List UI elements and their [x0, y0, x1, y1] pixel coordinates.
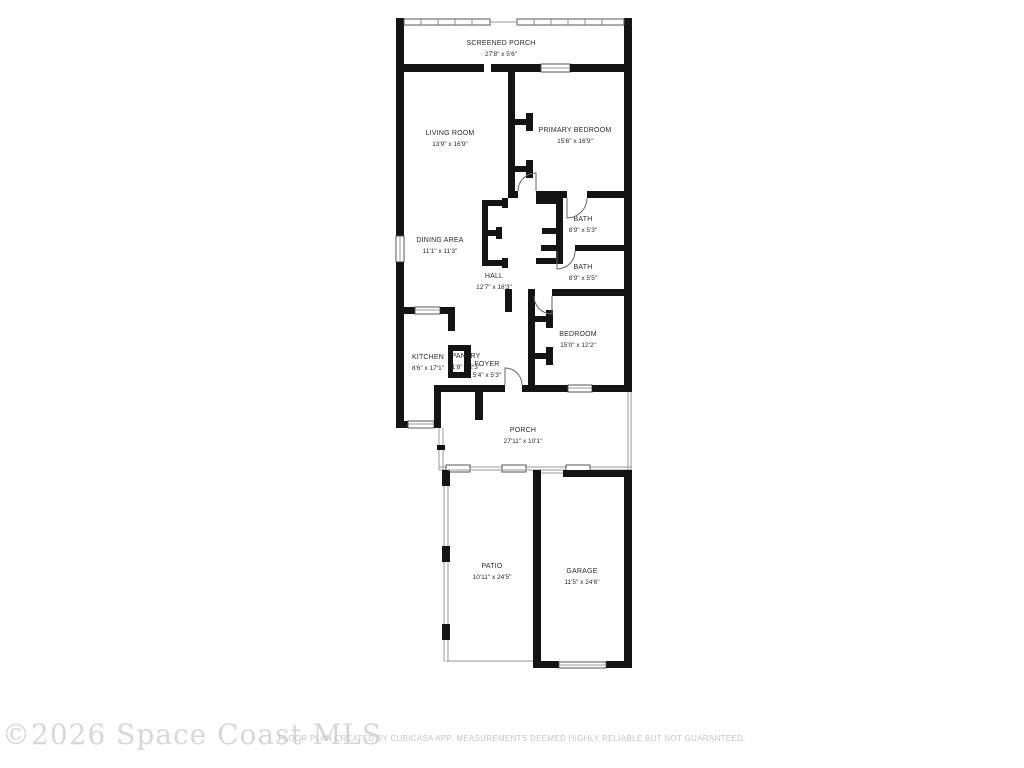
- room-name: HALL: [476, 272, 512, 283]
- room-dims: 27'11" x 10'1": [504, 436, 543, 446]
- hall-closets: [482, 198, 563, 268]
- window: [396, 236, 404, 262]
- living-primary-divider: [508, 72, 533, 197]
- room-dims: 5'4" x 5'3": [473, 370, 501, 380]
- room-name: PATIO: [473, 562, 512, 573]
- room-label-garage: GARAGE 11'5" x 24'6": [564, 567, 599, 587]
- room-dims: 8'9" x 5'3": [569, 225, 597, 235]
- room-label-screened-porch: SCREENED PORCH 27'8" x 5'6": [467, 39, 536, 59]
- room-name: FOYER: [473, 360, 501, 371]
- room-dims: 13'9" x 16'9": [426, 139, 475, 149]
- room-name: GARAGE: [564, 567, 599, 578]
- room-label-primary-bedroom: PRIMARY BEDROOM 15'6" x 16'9": [539, 126, 612, 146]
- window: [541, 64, 570, 72]
- house-top-wall: [396, 64, 632, 72]
- garage-door: [559, 662, 606, 668]
- room-label-kitchen: KITCHEN 8'6" x 17'1": [412, 353, 444, 373]
- disclaimer-text: FLOOR PLAN CREATED BY CUBICASA APP. MEAS…: [0, 734, 1024, 743]
- room-name: PRIMARY BEDROOM: [539, 126, 612, 137]
- room-label-living-room: LIVING ROOM 13'9" x 16'9": [426, 129, 475, 149]
- room-label-hall: HALL 12'7" x 18'3": [476, 272, 512, 292]
- room-label-bath-1: BATH 8'9" x 5'3": [569, 215, 597, 235]
- room-label-bath-2: BATH 8'9" x 5'5": [569, 263, 597, 283]
- room-name: BEDROOM: [559, 330, 597, 341]
- room-dims: 10'11" x 24'5": [473, 572, 512, 582]
- room-dims: 15'0" x 12'2": [559, 340, 597, 350]
- room-name: PORCH: [504, 426, 543, 437]
- room-name: LIVING ROOM: [426, 129, 475, 140]
- window: [415, 307, 440, 314]
- room-dims: 27'8" x 5'6": [467, 49, 536, 59]
- room-dims: 11'1" x 11'3": [416, 246, 463, 256]
- mid-horizontal-wall: [508, 173, 632, 218]
- room-name: KITCHEN: [412, 353, 444, 364]
- room-dims: 12'7" x 18'3": [476, 282, 512, 292]
- floor-plan-page: SCREENED PORCH 27'8" x 5'6" LIVING ROOM …: [0, 0, 1024, 768]
- room-name: BATH: [569, 263, 597, 274]
- room-dims: 8'9" x 5'5": [569, 273, 597, 283]
- room-label-foyer: FOYER 5'4" x 5'3": [473, 360, 501, 380]
- front-wall: [441, 368, 632, 420]
- room-name: DINING AREA: [416, 236, 463, 247]
- room-label-patio: PATIO 10'11" x 24'5": [473, 562, 512, 582]
- room-name: BATH: [569, 215, 597, 226]
- floor-plan-drawing: [0, 0, 1024, 768]
- room-dims: 15'6" x 16'9": [539, 136, 612, 146]
- room-label-bedroom: BEDROOM 15'0" x 12'2": [559, 330, 597, 350]
- room-dims: 8'6" x 17'1": [412, 363, 444, 373]
- room-label-dining-area: DINING AREA 11'1" x 11'3": [416, 236, 463, 256]
- room-label-porch: PORCH 27'11" x 10'1": [504, 426, 543, 446]
- room-name: SCREENED PORCH: [467, 39, 536, 50]
- window: [568, 385, 592, 392]
- window: [408, 421, 434, 428]
- room-dims: 11'5" x 24'6": [564, 577, 599, 587]
